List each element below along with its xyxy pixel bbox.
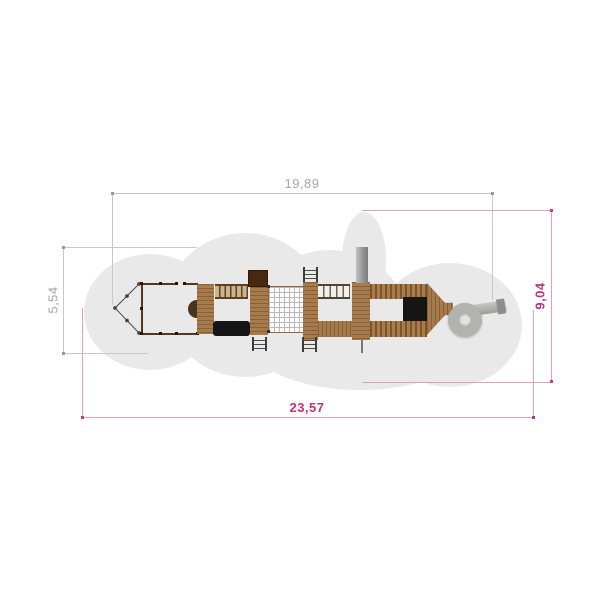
deck-post — [159, 332, 162, 335]
plan-drawing: 19,89 5,54 9,04 23,57 — [0, 0, 600, 600]
dimension-tick — [62, 246, 65, 249]
dimension-top-line — [112, 193, 493, 194]
deck-post — [140, 307, 143, 310]
mid-platform — [303, 282, 318, 340]
tunnel-entrance — [403, 297, 427, 321]
dimension-left-ext-top — [63, 247, 197, 248]
deck-frame-rail-bottom — [141, 333, 198, 335]
bridge-ramp — [318, 321, 352, 337]
playset-structure — [0, 0, 600, 600]
deck-post — [175, 282, 178, 285]
dimension-tick — [532, 416, 535, 419]
crawl-tunnel — [213, 321, 250, 336]
dimension-tick — [62, 352, 65, 355]
dimension-label-left: 5,54 — [46, 286, 61, 313]
deck-post — [140, 282, 143, 285]
dimension-right-line — [551, 210, 552, 382]
tower-roof — [248, 270, 268, 287]
dimension-right-ext-top — [362, 210, 552, 211]
dimension-tick — [111, 192, 114, 195]
deck-post — [159, 282, 162, 285]
tower-platform — [250, 287, 268, 335]
dimension-left-line — [63, 247, 64, 353]
mast-platform — [352, 282, 370, 340]
ladder — [302, 337, 317, 352]
dimension-bottom-line — [82, 417, 534, 418]
deck-post — [175, 332, 178, 335]
dimension-left-ext-bottom — [63, 353, 148, 354]
net-post — [267, 285, 270, 288]
mast — [356, 247, 368, 283]
dimension-label-bottom: 23,57 — [289, 400, 324, 415]
dimension-top-ext-left — [112, 193, 113, 305]
spiral-slide — [448, 303, 482, 337]
ladder — [303, 267, 318, 282]
dimension-tick — [550, 209, 553, 212]
monkey-bars — [215, 284, 248, 299]
climbing-net — [268, 286, 308, 333]
dimension-right-ext-bottom — [362, 382, 552, 383]
flag-pole — [361, 340, 363, 353]
deck-post — [140, 332, 143, 335]
dimension-tick — [81, 416, 84, 419]
bow-platform — [197, 284, 214, 334]
dimension-label-top: 19,89 — [284, 176, 319, 191]
rope-bridge — [318, 284, 350, 299]
deck-post — [183, 282, 186, 285]
dimension-label-right: 9,04 — [533, 282, 548, 309]
lookout-half-round — [188, 300, 197, 318]
dimension-tick — [491, 192, 494, 195]
ladder — [252, 337, 267, 351]
dimension-tick — [550, 380, 553, 383]
stairs-lower — [370, 321, 427, 337]
dimension-bottom-ext-left — [82, 308, 83, 417]
dimension-bottom-ext-right — [533, 310, 534, 417]
net-post — [267, 330, 270, 333]
